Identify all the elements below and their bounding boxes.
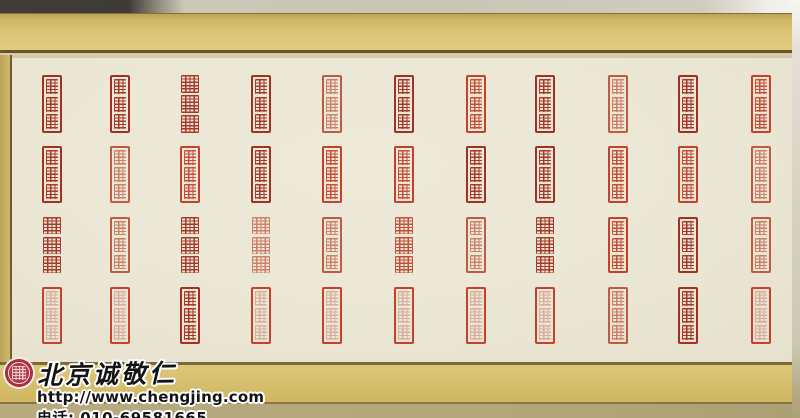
seal-script-glyphs [755,79,767,129]
seal-stamp [42,146,62,203]
seal-script-character [395,256,413,273]
seal-script-character [539,291,551,306]
seal-script-character [755,221,767,235]
seal-script-glyphs [470,221,482,269]
seal-stamp [251,75,271,133]
seal-script-glyphs [682,79,694,129]
seal-script-character [326,184,338,199]
seal-script-character [682,255,694,269]
seal-stamp [42,287,62,344]
seal-script-character [470,238,482,252]
seal-script-character [184,325,196,340]
seal-script-character [539,325,551,340]
seal-script-glyphs [46,150,58,199]
seal-script-character [255,97,267,112]
seal-script-glyphs [612,291,624,340]
seal-stamp [608,75,628,133]
seal-script-character [46,167,58,182]
seal-script-glyphs [114,221,126,269]
watermark: 北京诚敬仁 http://www.chengjing.com 电话: 010-6… [5,357,275,418]
seal-script-glyphs [395,217,413,273]
seal-stamp [394,217,414,273]
seal-script-character [612,114,624,129]
seal-script-character [612,325,624,340]
seal-script-character [755,150,767,165]
seal-script-character [536,256,554,273]
seal-script-glyphs [181,217,199,273]
seal-script-character [326,291,338,306]
seal-script-character [114,97,126,112]
seal-stamp [110,146,130,203]
seal-script-character [326,150,338,165]
seal-script-character [43,256,61,273]
seal-script-character [470,325,482,340]
seal-stamp [466,217,486,273]
seal-script-character [114,308,126,323]
seal-script-glyphs [326,79,338,129]
seal-script-character [682,167,694,182]
seal-script-character [46,150,58,165]
seal-script-character [682,79,694,94]
seal-script-character [181,95,199,113]
seal-stamp [42,75,62,133]
seal-script-character [755,184,767,199]
seal-script-character [184,291,196,306]
seal-script-character [612,308,624,323]
seal-stamp [751,75,771,133]
seal-script-character [326,255,338,269]
seal-script-character [114,221,126,235]
seal-script-character [536,237,554,254]
seal-script-glyphs [755,150,767,199]
seal-script-character [326,221,338,235]
seal-script-character [398,79,410,94]
seal-script-glyphs [470,79,482,129]
seal-script-character [398,325,410,340]
seal-script-glyphs [398,150,410,199]
seal-script-character [46,291,58,306]
seal-script-glyphs [682,291,694,340]
seal-script-glyphs [326,221,338,269]
seal-script-character [326,238,338,252]
seal-script-character [682,325,694,340]
seal-script-character [755,114,767,129]
seal-stamp [180,217,200,273]
seal-script-character [536,217,554,234]
seal-stamp [110,217,130,273]
seal-script-glyphs [539,150,551,199]
seal-script-character [46,325,58,340]
seal-script-character [539,184,551,199]
seal-script-character [539,97,551,112]
seal-script-character [612,238,624,252]
seal-script-character [398,114,410,129]
seal-script-character [114,291,126,306]
seal-script-character [612,221,624,235]
seal-script-glyphs [755,291,767,340]
chengjing-logo-seal-icon [5,359,33,387]
seal-stamp [678,287,698,344]
seal-stamp [322,75,342,133]
seal-script-glyphs [612,150,624,199]
seal-script-character [255,79,267,94]
seal-script-character [181,256,199,273]
seal-script-character [252,256,270,273]
seal-stamp [608,287,628,344]
seal-script-character [470,221,482,235]
seal-scroll-photo: 北京诚敬仁 http://www.chengjing.com 电话: 010-6… [0,0,800,418]
watermark-phone-text: 电话: 010-69581665 [37,407,275,418]
seal-script-character [114,238,126,252]
seal-stamp [322,217,342,273]
seal-script-glyphs [398,79,410,129]
seal-script-character [43,217,61,234]
seal-stamp [251,217,271,273]
seal-script-character [395,237,413,254]
seal-script-character [114,325,126,340]
seal-script-character [682,184,694,199]
seal-script-character [114,150,126,165]
seal-script-character [682,238,694,252]
seal-script-character [682,308,694,323]
seal-script-character [46,184,58,199]
seal-script-glyphs [326,150,338,199]
seal-stamp [466,75,486,133]
seal-stamp [678,146,698,203]
seal-script-glyphs [470,150,482,199]
seal-stamp [110,75,130,133]
seal-stamp [251,146,271,203]
seal-script-character [255,291,267,306]
seal-script-character [184,167,196,182]
seal-script-character [255,184,267,199]
seal-script-character [326,114,338,129]
seal-script-character [252,237,270,254]
seal-stamp [535,75,555,133]
seal-stamp [751,217,771,273]
seal-stamp [110,287,130,344]
seal-script-character [398,291,410,306]
seal-stamp [322,146,342,203]
seal-script-character [539,79,551,94]
seal-stamp [180,146,200,203]
seal-script-character [43,237,61,254]
seal-script-character [539,167,551,182]
seal-script-character [114,79,126,94]
seal-script-glyphs [612,221,624,269]
seal-script-character [470,114,482,129]
seal-script-character [395,217,413,234]
seal-script-character [539,308,551,323]
seal-script-glyphs [255,150,267,199]
seal-script-character [181,115,199,133]
seal-stamp [751,287,771,344]
seal-script-character [114,184,126,199]
seal-stamp [608,146,628,203]
seal-script-glyphs [755,221,767,269]
seal-script-glyphs [326,291,338,340]
seal-script-character [755,255,767,269]
seal-script-character [326,167,338,182]
seal-script-character [755,325,767,340]
seal-script-glyphs [398,291,410,340]
seal-script-glyphs [114,150,126,199]
seal-script-character [181,217,199,234]
seal-script-character [470,97,482,112]
background-wall-strip [0,0,800,13]
seal-script-character [682,291,694,306]
watermark-brand-text: 北京诚敬仁 [37,354,178,392]
seal-script-glyphs [255,291,267,340]
seal-stamp [466,287,486,344]
seal-script-glyphs [539,79,551,129]
seal-script-character [682,97,694,112]
seal-script-character [470,79,482,94]
seal-stamp [180,287,200,344]
seal-stamp [42,217,62,273]
seal-script-character [682,221,694,235]
seal-stamp [535,287,555,344]
seal-stamp [180,75,200,133]
seal-script-glyphs [46,79,58,129]
seal-script-character [398,167,410,182]
seal-script-character [755,238,767,252]
seal-script-character [612,97,624,112]
seal-stamp [322,287,342,344]
seal-script-glyphs [252,217,270,273]
seal-script-character [46,97,58,112]
seal-script-glyphs [46,291,58,340]
seal-script-character [46,114,58,129]
seal-script-character [255,150,267,165]
seal-script-character [612,184,624,199]
seal-script-character [612,291,624,306]
seal-stamp [394,75,414,133]
seal-stamp [535,217,555,273]
seal-script-character [470,291,482,306]
seal-script-character [682,114,694,129]
scroll-right-edge [792,0,800,418]
seal-script-character [255,325,267,340]
seal-script-glyphs [184,150,196,199]
seal-script-glyphs [470,291,482,340]
seal-script-character [470,167,482,182]
seal-script-character [755,97,767,112]
mount-trim-line-left [10,55,12,362]
seal-script-character [755,308,767,323]
seal-script-character [326,325,338,340]
seal-script-character [682,150,694,165]
seal-script-character [326,308,338,323]
seal-script-glyphs [682,221,694,269]
seal-script-glyphs [612,79,624,129]
seal-script-character [184,184,196,199]
seal-script-glyphs [114,79,126,129]
seal-stamp [466,146,486,203]
seal-script-character [398,184,410,199]
seal-stamp [751,146,771,203]
seal-script-glyphs [184,291,196,340]
seal-script-character [114,114,126,129]
seal-script-glyphs [255,79,267,129]
seal-stamp [678,217,698,273]
seal-stamp [678,75,698,133]
seal-script-character [398,308,410,323]
seal-script-glyphs [539,291,551,340]
seal-script-character [46,79,58,94]
seal-script-glyphs [536,217,554,273]
seal-script-character [470,308,482,323]
seal-stamp [251,287,271,344]
seal-script-character [326,97,338,112]
seal-script-character [46,308,58,323]
seal-script-character [755,79,767,94]
seal-stamp [535,146,555,203]
seal-script-character [184,150,196,165]
seal-script-glyphs [114,291,126,340]
seal-script-character [612,167,624,182]
seal-script-character [470,255,482,269]
seal-script-character [114,255,126,269]
seal-script-character [470,184,482,199]
gold-brocade-band-top [0,13,800,50]
watermark-brand-row: 北京诚敬仁 [5,357,275,389]
seal-script-character [181,237,199,254]
seal-stamp [394,146,414,203]
seal-script-character [181,75,199,93]
seal-script-character [612,150,624,165]
seal-stamp [394,287,414,344]
seal-script-character [470,150,482,165]
seal-script-character [755,291,767,306]
seal-script-character [255,167,267,182]
seal-script-glyphs [682,150,694,199]
seal-script-character [755,167,767,182]
seal-script-character [398,97,410,112]
seal-script-character [612,255,624,269]
seal-script-character [326,79,338,94]
seal-script-character [114,167,126,182]
seal-script-glyphs [43,217,61,273]
seal-script-character [255,114,267,129]
gold-mount-left-edge [0,55,10,362]
seal-script-character [255,308,267,323]
seal-script-character [539,114,551,129]
seal-script-character [612,79,624,94]
seal-stamp [608,217,628,273]
seal-script-character [252,217,270,234]
seal-script-character [184,308,196,323]
seal-script-character [539,150,551,165]
seal-script-glyphs [181,75,199,133]
seal-script-character [398,150,410,165]
